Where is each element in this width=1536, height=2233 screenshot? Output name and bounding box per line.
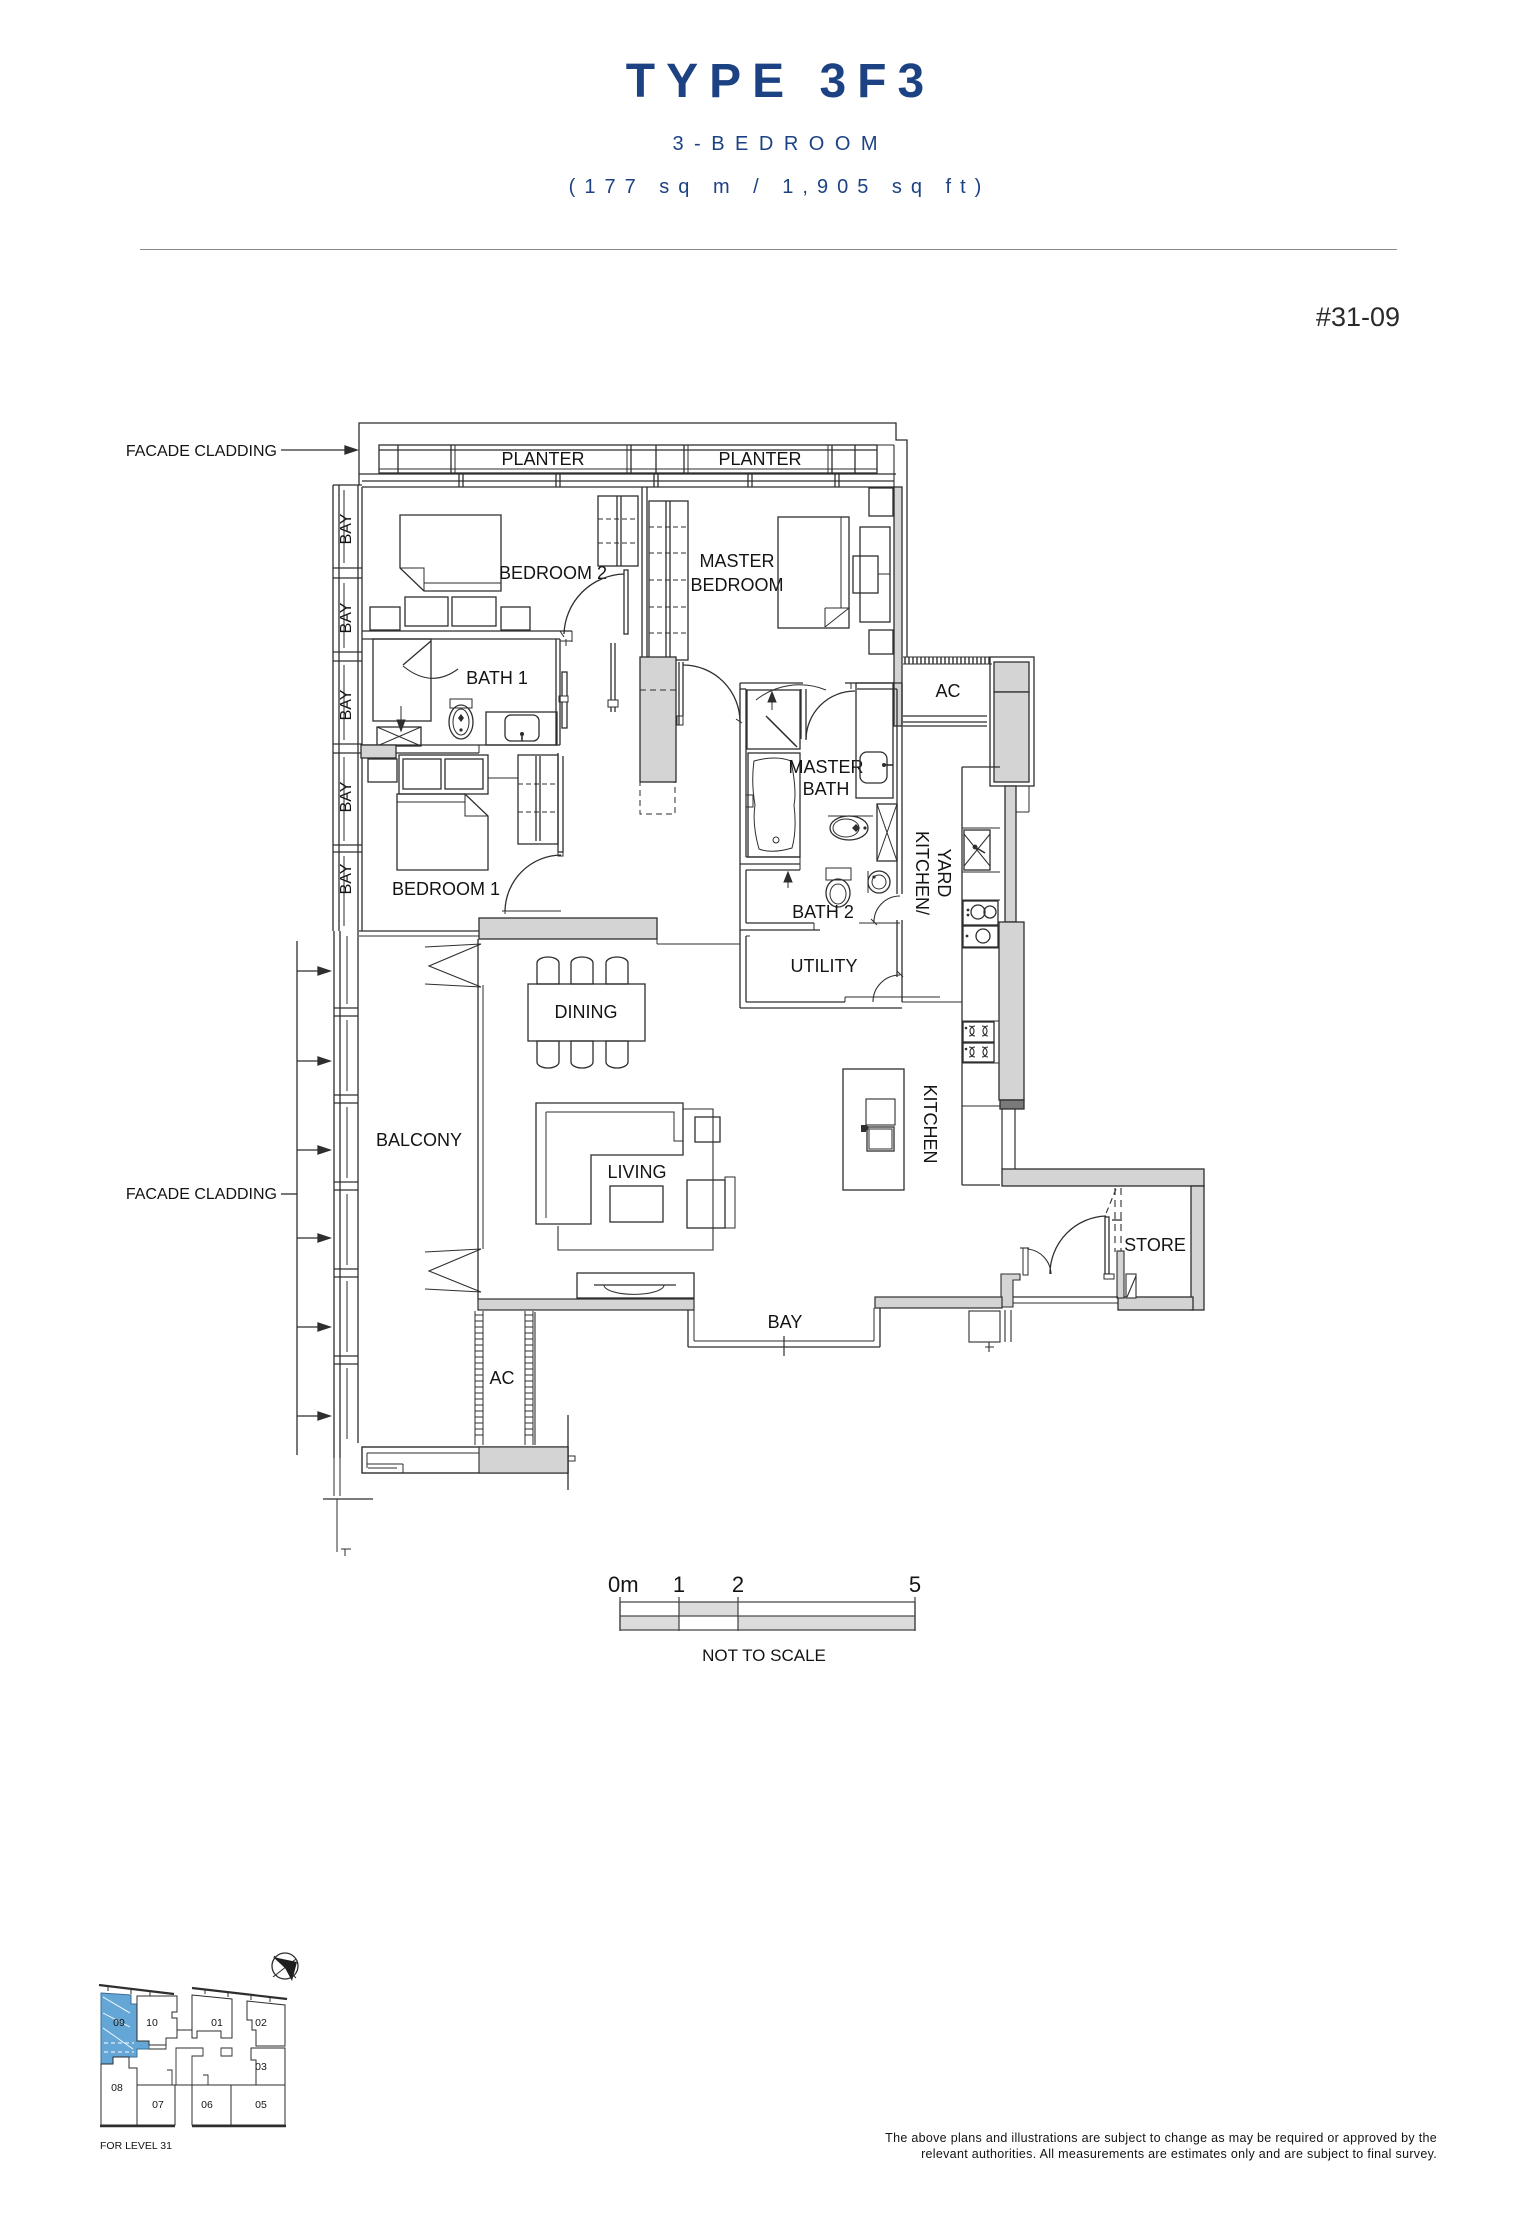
svg-text:BATH: BATH — [803, 779, 850, 799]
svg-text:AC: AC — [489, 1368, 514, 1388]
svg-text:MASTER: MASTER — [699, 551, 774, 571]
svg-text:BAY: BAY — [338, 781, 355, 812]
svg-text:relevant authorities. All meas: relevant authorities. All measurements a… — [921, 2147, 1437, 2161]
svg-text:10: 10 — [146, 2017, 158, 2029]
svg-text:PLANTER: PLANTER — [501, 449, 584, 469]
svg-text:PLANTER: PLANTER — [718, 449, 801, 469]
svg-text:BAY: BAY — [338, 513, 355, 544]
svg-text:03: 03 — [255, 2061, 267, 2073]
svg-text:5: 5 — [909, 1572, 921, 1597]
svg-text:BEDROOM 2: BEDROOM 2 — [499, 563, 607, 583]
svg-text:The above plans and illustrati: The above plans and illustrations are su… — [885, 2131, 1437, 2145]
svg-text:2: 2 — [732, 1572, 744, 1597]
svg-text:09: 09 — [113, 2017, 125, 2029]
svg-text:STORE: STORE — [1124, 1235, 1186, 1255]
svg-text:BALCONY: BALCONY — [376, 1130, 462, 1150]
svg-text:BAY: BAY — [338, 689, 355, 720]
svg-text:DINING: DINING — [555, 1002, 618, 1022]
svg-text:BAY: BAY — [768, 1312, 803, 1332]
svg-text:KITCHEN/: KITCHEN/ — [912, 831, 932, 915]
svg-text:LIVING: LIVING — [607, 1162, 666, 1182]
svg-text:NOT TO SCALE: NOT TO SCALE — [702, 1646, 826, 1665]
svg-text:FOR LEVEL 31: FOR LEVEL 31 — [100, 2140, 172, 2152]
svg-text:05: 05 — [255, 2099, 267, 2111]
svg-text:FACADE CLADDING: FACADE CLADDING — [126, 1186, 277, 1203]
svg-text:06: 06 — [201, 2099, 213, 2111]
svg-text:0m: 0m — [608, 1572, 639, 1597]
svg-text:AC: AC — [935, 681, 960, 701]
svg-text:BAY: BAY — [338, 602, 355, 633]
svg-text:07: 07 — [152, 2099, 164, 2111]
svg-text:KITCHEN: KITCHEN — [920, 1084, 940, 1163]
svg-text:08: 08 — [111, 2082, 123, 2094]
svg-text:02: 02 — [255, 2017, 267, 2029]
svg-text:BATH 2: BATH 2 — [792, 902, 854, 922]
svg-text:UTILITY: UTILITY — [790, 956, 857, 976]
svg-text:MASTER: MASTER — [788, 757, 863, 777]
svg-text:YARD: YARD — [934, 849, 954, 898]
svg-text:BEDROOM: BEDROOM — [690, 575, 783, 595]
svg-text:1: 1 — [673, 1572, 685, 1597]
svg-text:BEDROOM 1: BEDROOM 1 — [392, 879, 500, 899]
svg-text:01: 01 — [211, 2017, 223, 2029]
svg-text:BAY: BAY — [338, 863, 355, 894]
svg-text:FACADE CLADDING: FACADE CLADDING — [126, 443, 277, 460]
svg-text:BATH 1: BATH 1 — [466, 668, 528, 688]
